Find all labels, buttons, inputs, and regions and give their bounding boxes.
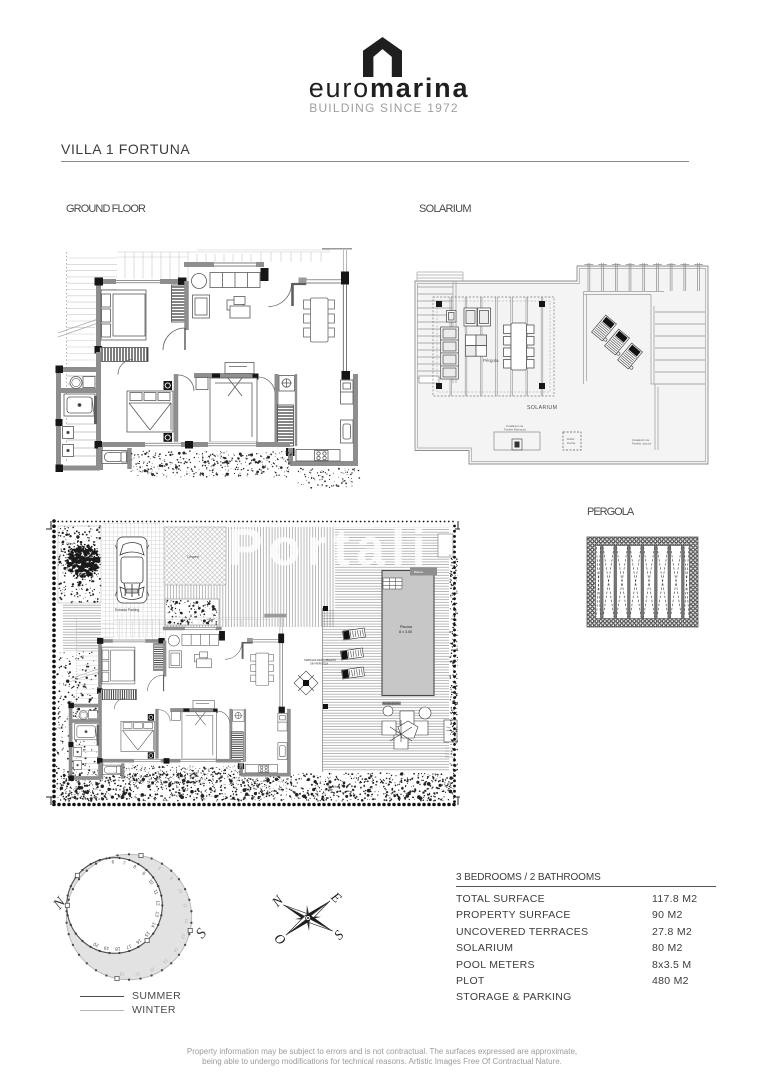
svg-text:8: 8 [132, 864, 137, 871]
svg-text:13: 13 [153, 911, 160, 918]
svg-text:Portali: Portali [228, 519, 432, 577]
svg-text:Césped: Césped [187, 555, 199, 559]
svg-text:20: 20 [92, 940, 100, 948]
svg-text:6: 6 [112, 859, 115, 865]
svg-text:E: E [327, 888, 345, 906]
svg-text:SOLARIUM: SOLARIUM [527, 405, 557, 411]
svg-text:Pérgola: Pérgola [483, 358, 499, 363]
svg-text:12: 12 [154, 900, 160, 906]
svg-text:S: S [331, 927, 347, 942]
svg-text:Porche: Porche [328, 785, 339, 789]
svg-text:11: 11 [152, 889, 159, 896]
svg-text:Posible Jacuzzi: Posible Jacuzzi [632, 442, 652, 446]
svg-text:Caja: Caja [446, 727, 451, 729]
svg-text:12: 12 [184, 918, 189, 924]
svg-text:Posible Barbacoa: Posible Barbacoa [504, 428, 526, 432]
svg-text:14: 14 [149, 921, 157, 929]
svg-text:TERRAZA DESCUBIERTA: TERRAZA DESCUBIERTA [304, 658, 336, 662]
svg-text:Tubo: Tubo [180, 607, 186, 611]
svg-text:19: 19 [103, 944, 110, 951]
svg-text:18: 18 [115, 945, 121, 951]
svg-text:17: 17 [125, 942, 132, 950]
svg-text:Olivo: Olivo [66, 542, 73, 546]
svg-text:Piscina: Piscina [400, 625, 413, 629]
svg-text:9: 9 [140, 871, 146, 877]
svg-text:10: 10 [147, 878, 155, 886]
svg-text:S: S [193, 925, 210, 941]
svg-text:O: O [271, 930, 289, 948]
svg-text:16: 16 [134, 937, 142, 945]
svg-text:Ducha: Ducha [567, 441, 576, 445]
svg-text:8 x 3.50: 8 x 3.50 [399, 630, 412, 634]
svg-text:N: N [268, 892, 286, 910]
svg-text:Entrada Parking: Entrada Parking [115, 608, 139, 612]
svg-text:SIN PERGOLA: SIN PERGOLA [310, 662, 328, 666]
svg-text:MERENDERO: MERENDERO [383, 701, 400, 705]
svg-text:7: 7 [122, 860, 126, 867]
svg-text:15: 15 [143, 930, 151, 938]
